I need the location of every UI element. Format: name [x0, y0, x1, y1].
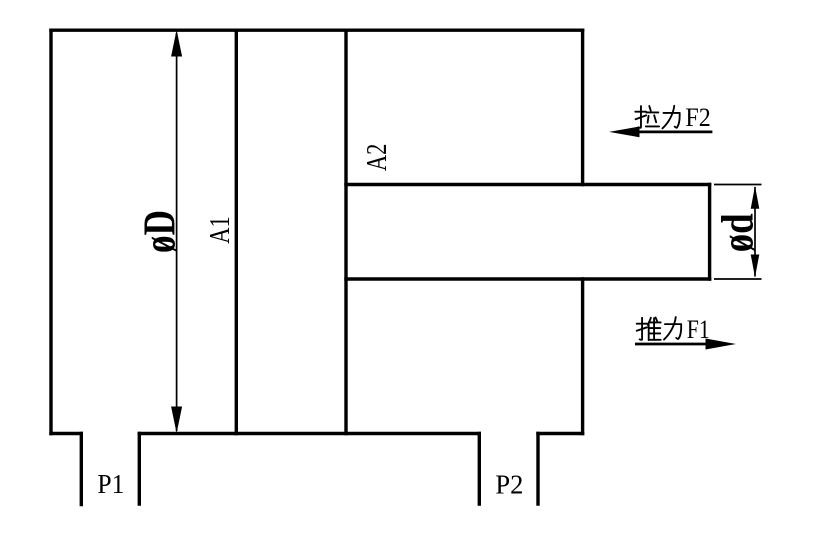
svg-text:P2: P2	[495, 470, 523, 500]
svg-text:øD: øD	[134, 210, 185, 253]
svg-text:A1: A1	[205, 216, 236, 244]
svg-text:P1: P1	[97, 469, 124, 499]
svg-text:F2: F2	[685, 102, 710, 132]
svg-text:ød: ød	[712, 213, 763, 252]
svg-text:A2: A2	[361, 144, 393, 172]
